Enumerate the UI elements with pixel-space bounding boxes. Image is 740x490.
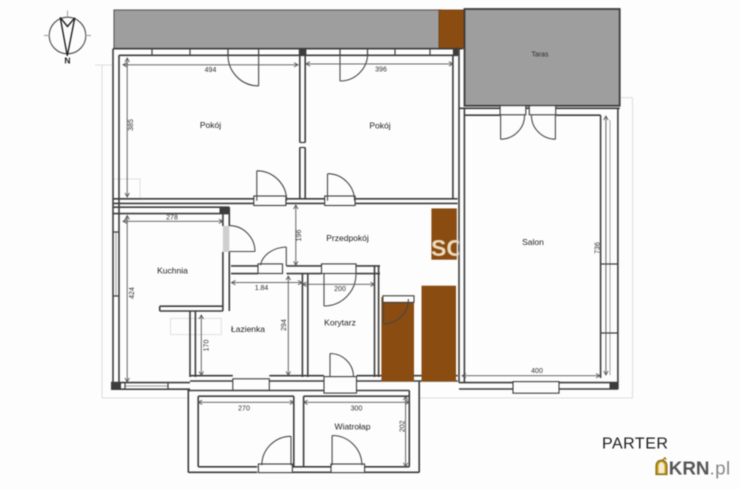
svg-text:Przedpokój: Przedpokój [326, 233, 369, 243]
svg-text:300: 300 [351, 406, 363, 413]
svg-text:494: 494 [205, 67, 217, 74]
svg-text:202: 202 [400, 420, 407, 432]
svg-text:170: 170 [203, 340, 210, 352]
svg-text:294: 294 [281, 319, 288, 331]
svg-text:KRN.pl: KRN.pl [669, 458, 731, 479]
svg-text:Pokój: Pokój [369, 121, 390, 131]
svg-text:Kuchnia: Kuchnia [157, 266, 188, 276]
svg-text:200: 200 [334, 286, 346, 293]
svg-text:736: 736 [595, 242, 602, 254]
svg-text:396: 396 [375, 67, 387, 74]
svg-text:PARTER: PARTER [602, 436, 668, 453]
svg-text:SC: SC [431, 235, 463, 261]
svg-text:278: 278 [166, 215, 178, 222]
svg-text:270: 270 [238, 406, 250, 413]
svg-text:196: 196 [296, 230, 303, 242]
svg-text:400: 400 [531, 368, 543, 375]
svg-text:424: 424 [129, 287, 136, 299]
svg-text:N: N [64, 56, 70, 66]
svg-text:Wiatrołap: Wiatrołap [335, 422, 371, 432]
svg-text:Pokój: Pokój [200, 120, 221, 130]
svg-text:Salon: Salon [522, 237, 544, 247]
svg-text:Korytarz: Korytarz [324, 318, 356, 328]
svg-text:1.84: 1.84 [255, 285, 269, 292]
svg-text:Łazienka: Łazienka [231, 324, 265, 334]
svg-text:Taras: Taras [531, 52, 549, 59]
svg-text:385: 385 [128, 119, 135, 131]
